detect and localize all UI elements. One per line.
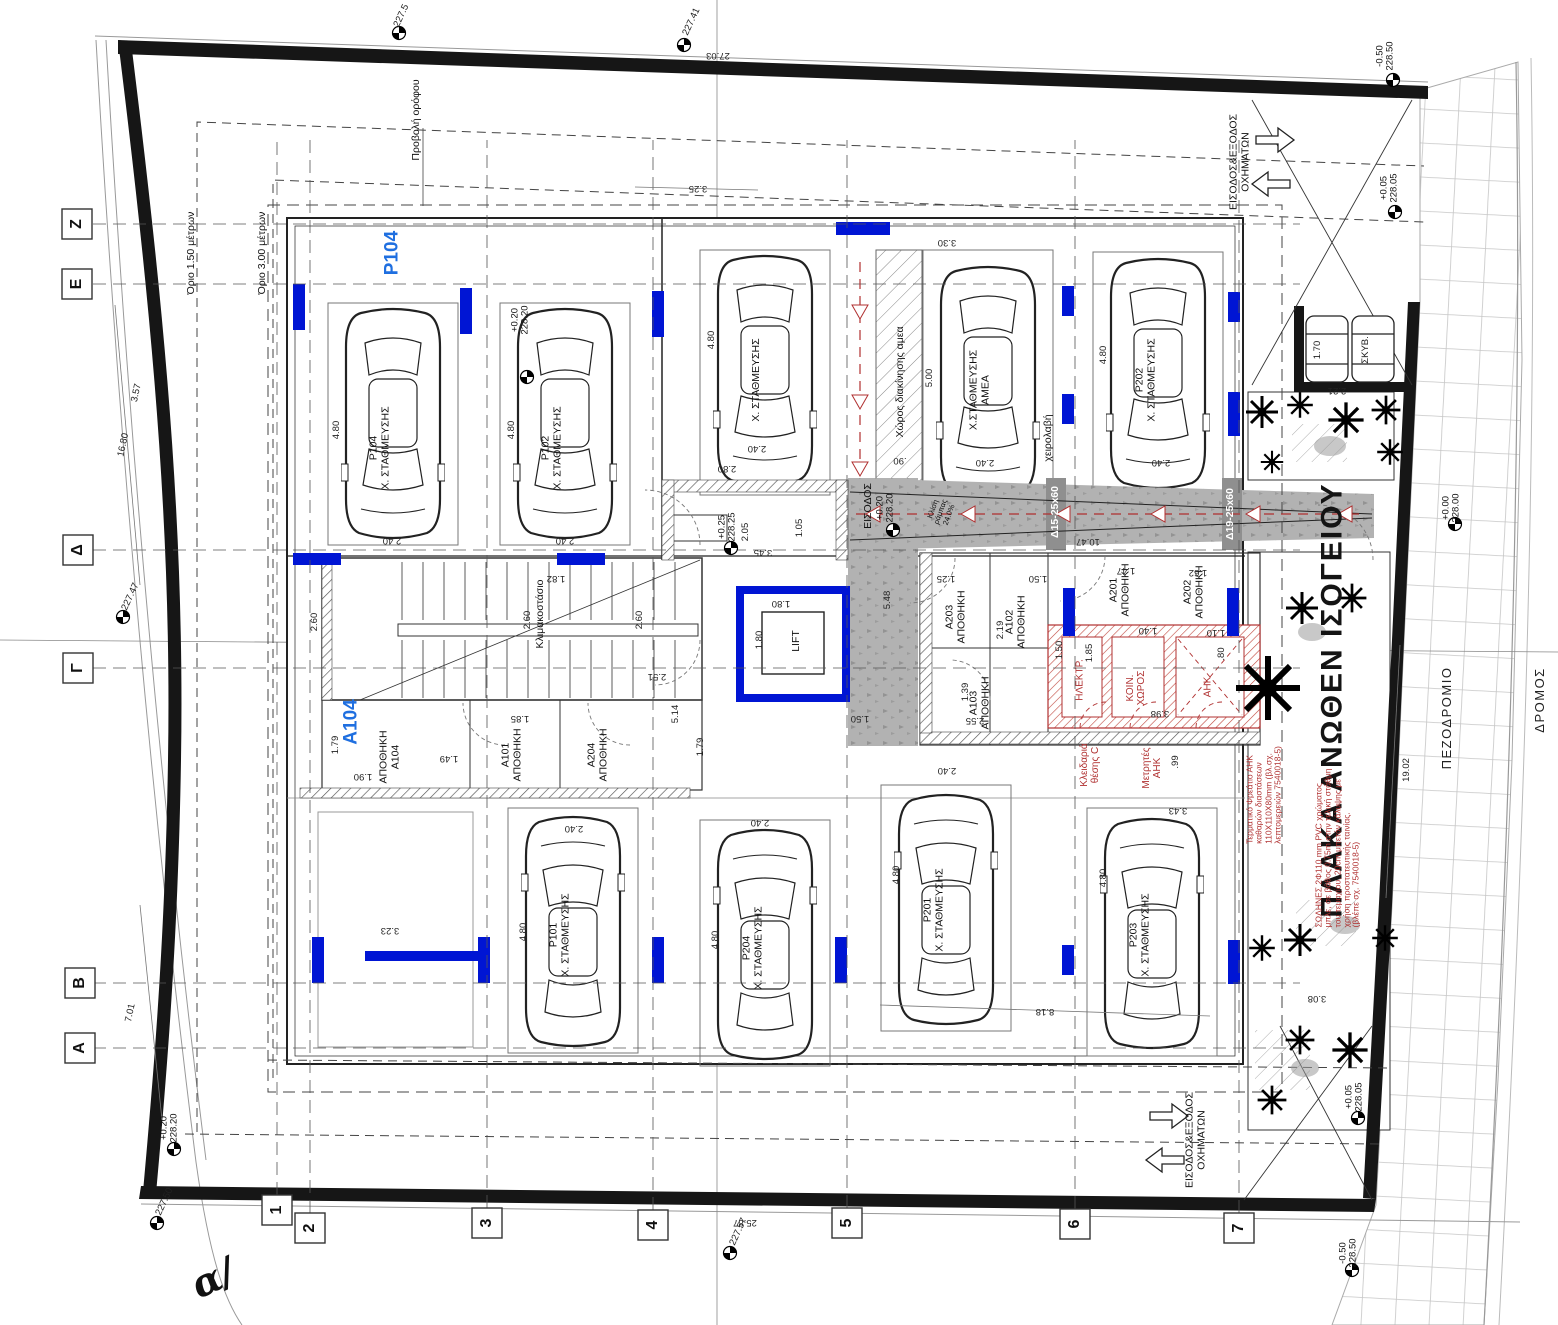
plan-label: 1.49 — [440, 753, 459, 763]
plan-label: 2.21 — [1328, 385, 1347, 395]
grid-axis-d: Δ — [69, 544, 87, 556]
grid-axis-b: Β — [71, 977, 89, 989]
lift-label: LIFT — [791, 630, 803, 652]
plan-label: 1.05 — [795, 519, 805, 538]
plan-label: 2.40 — [748, 443, 767, 453]
plan-label: 2.40 — [976, 457, 995, 467]
plan-label: 1.39 — [961, 683, 971, 702]
sidewalk-label: ΠΕΖΟΔΡΟΜΙΟ — [1440, 667, 1454, 770]
level-228-20-sw: +0.20 228.20 — [160, 1113, 181, 1142]
unit-p104: P104 — [383, 231, 404, 275]
level-228-05-se: +0.05 228.05 — [1345, 1082, 1366, 1111]
plan-label: 2.05 — [741, 523, 751, 542]
plan-label: 1.70 — [1313, 341, 1323, 360]
plan-label: 4.80 — [507, 421, 517, 440]
plan-label: 1.50 — [1055, 641, 1065, 660]
plan-label: 2.40 — [565, 823, 584, 833]
note-pvc-pipes: ΣΩΛΗΝΕΣ 2Φ110 mm PVC χρώματος μπλε, σε β… — [1315, 769, 1362, 928]
slab-above-ground-floor: ΠΛΑΚΑ ΑΝΩΘΕΝ ΙΣΟΓΕΙΟΥ — [1316, 482, 1349, 917]
grid-axis-a: Α — [71, 1042, 89, 1054]
storage-a101: A101 ΑΠΟΘΗΚΗ — [500, 728, 523, 781]
vehicle-entry-exit-bottom: ΕΙΣΟΔΟΣ&ΕΞΟΔΟΣ ΟΧΗΜΑΤΩΝ — [1184, 1092, 1207, 1188]
plan-label: 3.98 — [1151, 708, 1170, 718]
grid-axis-e: Ε — [68, 279, 86, 290]
parking-p102: P102 Χ. ΣΤΑΘΜΕΥΣΗΣ — [540, 406, 563, 489]
room-common-space: ΚΟΙΝ. ΧΩΡΟΣ — [1125, 671, 1147, 706]
level-228-20: +0.20 228.20 — [511, 305, 532, 334]
room-electrical: ΗΛΕΚΤΡ. — [1075, 659, 1086, 701]
plan-label: 5.14 — [671, 705, 681, 724]
amea-maneuver-zone: Χώρος διακίνησης αμεα — [895, 326, 907, 437]
unit-a104: A104 — [342, 699, 363, 744]
plan-label: 1.50 — [1029, 573, 1048, 583]
site-plan: ΖΕΔΓΒΑ1234567Όριο 1.50 μέτρωνΌριο 3.00 μ… — [0, 0, 1558, 1325]
plan-label: 2.40 — [938, 765, 957, 775]
level-228-00: +0.00 228.00 — [1442, 493, 1463, 522]
parking-p103: Χ. ΣΤΑΘΜΕΥΣΗΣ — [751, 338, 763, 421]
plan-labels: ΖΕΔΓΒΑ1234567Όριο 1.50 μέτρωνΌριο 3.00 μ… — [0, 0, 1558, 1325]
plan-label: 1.50 — [851, 713, 870, 723]
plan-label: 3.08 — [1308, 993, 1327, 1003]
ramp-slope: Κλίση ράμπας 24.0% — [925, 496, 957, 529]
plan-label: 4.80 — [1099, 346, 1109, 365]
plan-label: 10.47 — [1076, 536, 1100, 546]
plan-label: 4.80 — [332, 421, 342, 440]
plan-label: 7.01 — [124, 1003, 138, 1023]
beam-d19: Δ19-25x60 — [1225, 488, 1237, 540]
plan-label: 4.80 — [1099, 869, 1109, 888]
plan-label: 1.80 — [755, 631, 765, 650]
plan-label: 3.43 — [1169, 805, 1188, 815]
plan-label: .90 — [893, 455, 906, 465]
plan-label: 16.80 — [116, 432, 131, 457]
plan-label: 2.51 — [648, 671, 667, 681]
level-228-50-ne: -0.50 228.50 — [1376, 41, 1397, 70]
grid-axis-3: 3 — [478, 1219, 496, 1228]
plan-label: 2.40 — [751, 817, 770, 827]
note-lock-position-c: Κλειδαριά θέσης C — [1079, 743, 1101, 786]
plan-label: 1.62 — [1189, 567, 1208, 577]
grid-axis-6: 6 — [1066, 1220, 1084, 1229]
grid-axis-g: Γ — [69, 663, 87, 673]
spot-227-5: 227.5 — [392, 3, 412, 29]
level-228-05-ne: +0.05 228.05 — [1380, 173, 1401, 202]
storage-a203: A203 ΑΠΟΘΗΚΗ — [944, 590, 967, 643]
plan-label: 4.80 — [711, 931, 721, 950]
storage-a201: A201 ΑΠΟΘΗΚΗ — [1108, 563, 1131, 616]
note-ahk-pit: Τερματικό Φρεάτιο ΑΗΚ καθαρών διαστάσεων… — [1245, 746, 1282, 844]
level-228-25: +0.25 228.25 — [718, 512, 739, 541]
plan-label: 25.87 — [733, 1217, 757, 1227]
bins-label: ΣΚΥΒ. — [1361, 336, 1371, 364]
grid-axis-2: 2 — [301, 1224, 319, 1233]
room-ahk: ΑΗΚ — [1203, 677, 1214, 698]
plan-label: 4.80 — [519, 923, 529, 942]
plan-label: 3.30 — [938, 237, 957, 247]
parking-p203: P203 Χ. ΣΤΑΘΜΕΥΣΗΣ — [1128, 893, 1151, 976]
plan-label: 2.60 — [310, 613, 320, 632]
beam-d15: Δ15-25x60 — [1050, 486, 1062, 538]
plan-label: 4.80 — [892, 866, 902, 885]
plan-label: 1.47 — [1117, 565, 1136, 575]
plan-label: 2.40 — [383, 535, 402, 545]
handrail-label: χειρολαβή — [1043, 414, 1055, 461]
plan-label: 1.90 — [354, 771, 373, 781]
plan-label: 2.60 — [523, 611, 533, 630]
setback-1-50: Όριο 1.50 μέτρων — [186, 212, 198, 295]
storage-a202: A202 ΑΠΟΘΗΚΗ — [1182, 565, 1205, 618]
parking-p204: P204 Χ. ΣΤΑΘΜΕΥΣΗΣ — [741, 906, 764, 989]
parking-amea: Χ.ΣΤΑΘΜΕΥΣΗΣ ΑΜΕΑ — [968, 350, 991, 430]
spot-227-50: 227.50 — [154, 1187, 176, 1218]
storage-a204: A204 ΑΠΟΘΗΚΗ — [586, 728, 609, 781]
plan-label: 2.55 — [966, 715, 985, 725]
plan-label: 2.60 — [635, 611, 645, 630]
plan-label: 1.79 — [331, 736, 341, 755]
plan-label: 27.03 — [706, 50, 730, 60]
plan-label: 3.57 — [130, 383, 144, 403]
road-label: ΔΡΟΜΟΣ — [1533, 667, 1547, 732]
parking-p101: P101 Χ. ΣΤΑΘΜΕΥΣΗΣ — [548, 893, 571, 976]
plan-label: 1.79 — [696, 738, 706, 757]
floor-projection: Προβολή ορόφου — [411, 79, 423, 160]
plan-label: 3.23 — [381, 925, 400, 935]
plan-label: 8.18 — [1036, 1006, 1055, 1016]
plan-label: 3.45 — [754, 547, 773, 557]
level-228-20-entry: +0.20 228.20 — [876, 493, 897, 522]
spot-227-41: 227.41 — [681, 7, 703, 38]
plan-label: 2.40 — [556, 535, 575, 545]
plan-label: 2.80 — [718, 463, 737, 473]
setback-3-00: Όριο 3.00 μέτρων — [257, 212, 269, 295]
grid-axis-z: Ζ — [68, 219, 86, 229]
plan-label: .80 — [1217, 647, 1227, 660]
street-name-fragment: α/ — [185, 1250, 242, 1306]
plan-label: 2.19 — [996, 621, 1006, 640]
plan-label: 2.40 — [1152, 457, 1171, 467]
storage-a102: A102 ΑΠΟΘΗΚΗ — [1004, 595, 1027, 648]
plan-label: 1.10 — [1207, 627, 1226, 637]
plan-label: 1.25 — [937, 573, 956, 583]
spot-227-47: 227.47 — [120, 582, 142, 613]
grid-axis-5: 5 — [838, 1219, 856, 1228]
parking-p104: P104 Χ. ΣΤΑΘΜΕΥΣΗΣ — [368, 406, 391, 489]
level-228-50-se: -0.50 228.50 — [1339, 1238, 1360, 1267]
storage-a103: A103 ΑΠΟΘΗΚΗ — [968, 676, 991, 729]
plan-label: 1.80 — [772, 598, 791, 608]
note-ahk-meters: Μετρητές ΑΗΚ — [1141, 747, 1163, 788]
plan-label: 5.00 — [925, 369, 935, 388]
grid-axis-1: 1 — [268, 1206, 286, 1215]
parking-p202: P202 Χ. ΣΤΑΘΜΕΥΣΗΣ — [1134, 338, 1157, 421]
grid-axis-7: 7 — [1230, 1224, 1248, 1233]
staircase-label: Κλιμακοστάσιο — [535, 580, 547, 649]
plan-label: 4.80 — [707, 331, 717, 350]
vehicle-entry-exit-top: ΕΙΣΟΔΟΣ&ΕΞΟΔΟΣ ΟΧΗΜΑΤΩΝ — [1228, 114, 1251, 210]
plan-label: 19.02 — [1402, 758, 1412, 782]
entrance-label: ΕΙΣΟΔΟΣ — [863, 483, 875, 529]
plan-label: 1.85 — [1085, 644, 1095, 663]
plan-label: 1.85 — [511, 713, 530, 723]
parking-p201: P201 Χ. ΣΤΑΘΜΕΥΣΗΣ — [922, 868, 945, 951]
spot-227-57: 227.57 — [728, 1217, 750, 1248]
plan-label: 1.40 — [1139, 625, 1158, 635]
plan-label: .99 — [1171, 755, 1181, 768]
storage-a104: ΑΠΟΘΗΚΗ A104 — [378, 730, 401, 783]
plan-label: 5.48 — [883, 591, 893, 610]
grid-axis-4: 4 — [644, 1221, 662, 1230]
plan-label: 3.25 — [689, 183, 708, 193]
plan-label: 1.82 — [547, 573, 566, 583]
